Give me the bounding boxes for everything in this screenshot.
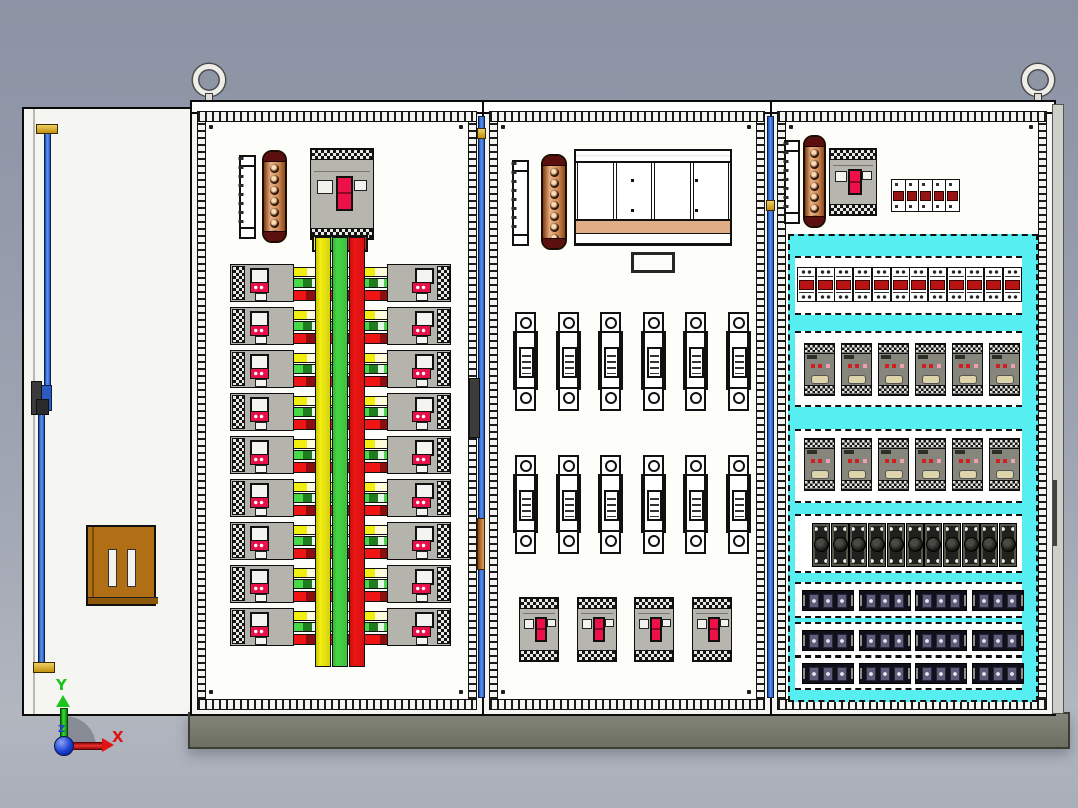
terminal-block[interactable]	[909, 267, 928, 302]
contactor-breaker[interactable]	[915, 438, 946, 491]
breaker-indicator	[412, 411, 431, 422]
contactor-terminals-top	[916, 344, 945, 354]
fuse-tab-bottom	[515, 530, 536, 554]
enclosure-screw	[695, 179, 698, 182]
outgoing-mccb[interactable]	[692, 597, 732, 662]
main-incoming-breaker[interactable]	[310, 148, 374, 240]
enclosure-screw	[631, 179, 634, 182]
terminal-cell	[836, 268, 851, 277]
contactor-indicator	[959, 459, 963, 463]
contactor-tag	[844, 355, 854, 359]
contactor-indicator	[811, 459, 815, 463]
din-terminal-cell	[922, 634, 932, 648]
fuse-tab-bottom	[558, 530, 579, 554]
contactor-label	[996, 375, 1014, 384]
terminal-block[interactable]	[872, 267, 891, 302]
fuseholder-cap	[926, 537, 941, 552]
mccb-toggle-split	[710, 628, 718, 630]
terminal-cell	[836, 292, 851, 301]
fuse-disconnect[interactable]	[726, 455, 749, 550]
cylindrical-fuse-holder[interactable]	[999, 523, 1017, 567]
door-lock-rod-upper[interactable]	[44, 131, 51, 389]
contactor-breaker[interactable]	[804, 438, 835, 491]
document-pocket[interactable]	[86, 525, 156, 606]
din-terminal-group[interactable]	[859, 590, 911, 611]
fuse-disconnect[interactable]	[513, 455, 536, 550]
contactor-terminals-bottom	[805, 385, 834, 395]
bay3-mccb[interactable]	[829, 148, 877, 216]
terminal-red-bar	[949, 280, 964, 290]
contactor-breaker[interactable]	[804, 343, 835, 396]
mccb-terminals-bottom	[693, 650, 731, 661]
distribution-breaker[interactable]	[230, 350, 294, 388]
fuse-tab-bottom	[515, 387, 536, 411]
cylindrical-fuse-holder[interactable]	[924, 523, 942, 567]
contactor-indicator	[892, 364, 896, 368]
fuse-hole	[520, 317, 532, 329]
cabinet-2[interactable]	[482, 100, 774, 716]
contactor-terminals-bottom	[842, 385, 871, 395]
terminal-cell	[818, 292, 833, 301]
contactor-breaker[interactable]	[878, 343, 909, 396]
contactor-indicator	[959, 364, 963, 368]
mccb-label	[835, 171, 847, 182]
lifting-eyebolt-left[interactable]	[193, 64, 225, 102]
pocket-edge	[92, 527, 94, 604]
fuse-hole	[563, 460, 575, 472]
copper-hole	[810, 182, 819, 191]
contactor-indicator	[1003, 364, 1007, 368]
terminal-cell	[949, 268, 964, 277]
metering-enclosure[interactable]	[574, 149, 732, 246]
din-terminal-cell	[936, 594, 946, 608]
cabinet-3[interactable]	[770, 100, 1056, 716]
fuseholder-cap	[982, 537, 997, 552]
breaker-label	[416, 637, 428, 645]
din-terminal-group[interactable]	[915, 630, 967, 651]
cabinet-side-panel-right	[1052, 104, 1064, 714]
copper-hole	[270, 219, 279, 228]
vertical-busbar-l1[interactable]	[315, 237, 331, 667]
pocket-slot	[127, 549, 136, 587]
copper-hole	[270, 164, 279, 173]
fuse-body	[726, 474, 751, 533]
din-terminal-cell	[837, 634, 847, 648]
din-terminal-group[interactable]	[972, 630, 1024, 651]
mounting-plate-highlight[interactable]	[788, 234, 1038, 702]
fuseholder-cap	[851, 537, 866, 552]
breaker-terminal-hatch	[232, 266, 245, 300]
fuse-hole	[563, 535, 575, 547]
terminal-block[interactable]	[947, 267, 966, 302]
outgoing-mccb[interactable]	[577, 597, 617, 662]
contactor-label	[996, 470, 1014, 479]
terminal-block[interactable]	[965, 267, 984, 302]
terminal-red-bar	[799, 280, 814, 290]
distribution-breaker[interactable]	[230, 479, 294, 517]
contactor-indicator	[929, 364, 933, 368]
distribution-breaker[interactable]	[387, 350, 451, 388]
distribution-breaker[interactable]	[230, 307, 294, 345]
fuse-disconnect[interactable]	[556, 455, 579, 550]
distribution-breaker[interactable]	[387, 393, 451, 431]
contactor-indicator	[937, 459, 941, 463]
contactor-indicator	[937, 364, 941, 368]
mccb-label	[317, 180, 333, 194]
contactor-indicator	[1011, 459, 1015, 463]
terminal-red-bar	[920, 191, 931, 201]
distribution-breaker[interactable]	[387, 479, 451, 517]
din-terminal-cell	[837, 594, 847, 608]
contactor-terminals-top	[879, 344, 908, 354]
terminal-cell	[855, 268, 870, 277]
cylindrical-fuse-holder[interactable]	[812, 523, 830, 567]
contactor-breaker[interactable]	[841, 343, 872, 396]
fuse-body	[556, 474, 581, 533]
fuse-hole	[605, 535, 617, 547]
mccb-body-line	[314, 171, 370, 172]
terminal-red-bar	[986, 280, 1001, 290]
terminal-block[interactable]	[853, 267, 872, 302]
fuse-body	[641, 474, 666, 533]
din-terminal-group[interactable]	[859, 630, 911, 651]
cylindrical-fuse-holder[interactable]	[962, 523, 980, 567]
contactor-indicator	[885, 364, 889, 368]
fuse-label	[562, 490, 577, 521]
fuseholder-cap	[833, 537, 848, 552]
distribution-breaker[interactable]	[230, 565, 294, 603]
terminal-cell	[930, 268, 945, 277]
door-rod-guide-top	[36, 124, 58, 134]
cabinet-1[interactable]	[190, 100, 486, 716]
contactor-indicator	[855, 364, 859, 368]
fuse-body	[513, 474, 538, 533]
din-terminal-cell	[993, 594, 1003, 608]
mccb-label	[697, 619, 707, 629]
copper-busbar[interactable]	[803, 135, 826, 228]
fuseholder-cap	[889, 537, 904, 552]
terminal-column	[946, 180, 959, 211]
din-terminal-cell	[936, 634, 946, 648]
breaker-indicator	[412, 540, 431, 551]
din-terminal-group[interactable]	[802, 630, 854, 651]
panel-screw	[747, 125, 751, 129]
contactor-indicator	[974, 459, 978, 463]
fuse-tab-bottom	[600, 387, 621, 411]
din-terminal-group[interactable]	[802, 663, 854, 684]
mccb-label	[639, 619, 649, 629]
fuse-tab-bottom	[558, 387, 579, 411]
panel-screw	[209, 690, 213, 694]
breaker-indicator	[250, 282, 269, 293]
mccb-body-line	[696, 613, 728, 614]
cylindrical-fuse-holder[interactable]	[868, 523, 886, 567]
breaker-label	[255, 293, 267, 301]
contactor-tag	[807, 355, 817, 359]
distribution-breaker[interactable]	[230, 436, 294, 474]
fuse-tab-bottom	[643, 530, 664, 554]
fuse-tab-bottom	[685, 387, 706, 411]
din-terminal-cell	[866, 634, 876, 648]
outgoing-mccb[interactable]	[519, 597, 559, 662]
panel-screw	[459, 125, 463, 129]
fuse-label	[647, 490, 662, 521]
din-terminal-group[interactable]	[802, 590, 854, 611]
fuse-body	[598, 474, 623, 533]
terminal-red-bar	[967, 280, 982, 290]
cylindrical-fuse-holder[interactable]	[980, 523, 998, 567]
fuse-disconnect[interactable]	[556, 312, 579, 407]
distribution-breaker[interactable]	[230, 393, 294, 431]
fuse-label	[604, 347, 619, 378]
cad-viewport[interactable]: Y X Z	[0, 0, 1078, 808]
fuse-disconnect[interactable]	[598, 312, 621, 407]
copper-busbar[interactable]	[541, 154, 567, 250]
contactor-row	[795, 331, 1022, 407]
copper-cap	[543, 156, 565, 166]
cylindrical-fuse-holder[interactable]	[887, 523, 905, 567]
contactor-label	[959, 470, 977, 479]
fuse-disconnect[interactable]	[598, 455, 621, 550]
fuse-body	[556, 331, 581, 390]
breaker-indicator	[412, 626, 431, 637]
din-terminal-cell	[922, 667, 932, 681]
terminal-red-bar	[874, 280, 889, 290]
fuse-disconnect[interactable]	[726, 312, 749, 407]
fuse-hole	[690, 392, 702, 404]
breaker-indicator	[412, 368, 431, 379]
terminal-strip[interactable]	[512, 160, 529, 246]
contactor-indicator	[892, 459, 896, 463]
breaker-terminal-hatch	[232, 352, 245, 386]
origin-triad[interactable]: Y X Z	[20, 670, 150, 780]
terminal-cell	[986, 292, 1001, 301]
mccb-terminals-top	[311, 149, 373, 160]
breaker-terminal-hatch	[437, 266, 450, 300]
breaker-terminal-hatch	[232, 481, 245, 515]
din-terminal-group[interactable]	[972, 590, 1024, 611]
distribution-breaker[interactable]	[230, 264, 294, 302]
fuse-hole	[733, 392, 745, 404]
distribution-breaker[interactable]	[387, 264, 451, 302]
contactor-breaker[interactable]	[989, 438, 1020, 491]
fuse-disconnect[interactable]	[683, 312, 706, 407]
din-terminal-cell	[823, 667, 833, 681]
fuse-hole	[733, 460, 745, 472]
contactor-terminals-top	[953, 344, 982, 354]
terminal-red-bar	[934, 191, 945, 201]
mccb-label	[524, 619, 534, 629]
contactor-tag	[918, 450, 928, 454]
cylindrical-fuse-holder[interactable]	[849, 523, 867, 567]
din-terminal-group[interactable]	[915, 663, 967, 684]
contactor-tag	[881, 355, 891, 359]
din-terminal-cell	[950, 594, 960, 608]
breaker-indicator	[250, 540, 269, 551]
eyebolt-ring	[193, 64, 225, 96]
cylindrical-fuse-holder[interactable]	[831, 523, 849, 567]
terminal-block[interactable]	[834, 267, 853, 302]
fuse-label	[732, 347, 747, 378]
mccb-toggle	[535, 617, 547, 642]
copper-hole	[270, 186, 279, 195]
breaker-label	[416, 465, 428, 473]
breaker-label	[255, 379, 267, 387]
copper-hole	[810, 171, 819, 180]
distribution-breaker[interactable]	[387, 565, 451, 603]
distribution-breaker[interactable]	[387, 522, 451, 560]
fuse-hole	[520, 392, 532, 404]
terminal-strip-row	[795, 582, 1022, 618]
outgoing-mccb[interactable]	[634, 597, 674, 662]
contactor-terminals-bottom	[879, 385, 908, 395]
contactor-terminals-top	[842, 344, 871, 354]
door-lock-rod-lower[interactable]	[38, 407, 45, 667]
terminal-red-bar	[893, 280, 908, 290]
fuse-disconnect[interactable]	[513, 312, 536, 407]
fuse-disconnect[interactable]	[641, 455, 664, 550]
origin-sphere[interactable]	[54, 736, 74, 756]
contactor-label	[848, 375, 866, 384]
terminal-strip[interactable]	[239, 155, 256, 239]
terminal-strip[interactable]	[784, 140, 800, 224]
fuse-tab-bottom	[728, 387, 749, 411]
din-terminal-cell	[979, 634, 989, 648]
terminal-red-bar	[1005, 280, 1020, 290]
mccb-toggle	[848, 169, 862, 195]
din-terminal-group[interactable]	[859, 663, 911, 684]
contactor-breaker[interactable]	[915, 343, 946, 396]
fuse-hole	[648, 392, 660, 404]
copper-hole	[550, 201, 559, 210]
top-terminal-block-array[interactable]	[891, 179, 960, 212]
contactor-breaker[interactable]	[841, 438, 872, 491]
distribution-breaker[interactable]	[230, 608, 294, 646]
din-terminal-cell	[823, 594, 833, 608]
copper-cap	[264, 152, 285, 162]
terminal-cell	[930, 292, 945, 301]
contactor-indicator	[966, 459, 970, 463]
contactor-indicator	[848, 459, 852, 463]
contactor-tag	[918, 355, 928, 359]
terminal-strip-row	[795, 622, 1022, 657]
breaker-indicator	[412, 325, 431, 336]
contactor-label	[959, 375, 977, 384]
contactor-indicator	[1003, 459, 1007, 463]
fuse-hole	[605, 392, 617, 404]
terminal-block[interactable]	[984, 267, 1003, 302]
contactor-indicator	[966, 364, 970, 368]
breaker-label	[255, 422, 267, 430]
copper-cap	[805, 137, 824, 147]
fuse-disconnect[interactable]	[641, 312, 664, 407]
contactor-breaker[interactable]	[989, 343, 1020, 396]
mccb-body-line	[833, 165, 873, 166]
din-terminal-group[interactable]	[972, 663, 1024, 684]
fuseholder-cap	[945, 537, 960, 552]
breaker-indicator	[412, 282, 431, 293]
breaker-terminal-hatch	[232, 567, 245, 601]
cabinet-door-panel[interactable]	[22, 107, 194, 716]
fuse-hole	[648, 535, 660, 547]
cylindrical-fuse-holder[interactable]	[943, 523, 961, 567]
terminal-block[interactable]	[1003, 267, 1022, 302]
copper-hole	[270, 175, 279, 184]
contactor-indicator	[863, 364, 867, 368]
contactor-indicator	[900, 459, 904, 463]
vertical-busbar-l2[interactable]	[332, 237, 348, 667]
terminal-block[interactable]	[816, 267, 835, 302]
cylindrical-fuse-holder[interactable]	[906, 523, 924, 567]
breaker-terminal-hatch	[232, 610, 245, 644]
mccb-toggle-split	[537, 628, 545, 630]
x-axis-label: X	[112, 730, 124, 745]
contactor-breaker[interactable]	[952, 343, 983, 396]
din-terminal-group[interactable]	[915, 590, 967, 611]
bay2-rod-handle[interactable]	[469, 378, 480, 438]
din-terminal-cell	[866, 667, 876, 681]
distribution-breaker[interactable]	[230, 522, 294, 560]
distribution-breaker[interactable]	[387, 307, 451, 345]
fuse-label	[647, 347, 662, 378]
mccb-toggle	[650, 617, 662, 642]
contactor-terminals-top	[916, 439, 945, 449]
terminal-cell	[967, 292, 982, 301]
contactor-terminals-top	[842, 439, 871, 449]
terminal-red-bar	[836, 280, 851, 290]
lifting-eyebolt-right[interactable]	[1022, 64, 1054, 102]
mccb-label	[720, 619, 729, 627]
contactor-breaker[interactable]	[878, 438, 909, 491]
enclosure-copper-rail	[576, 219, 730, 234]
terminal-block[interactable]	[797, 267, 816, 302]
distribution-breaker[interactable]	[387, 436, 451, 474]
fuse-tab-bottom	[728, 530, 749, 554]
contactor-indicator	[929, 459, 933, 463]
contactor-label	[811, 470, 829, 479]
fuse-label	[519, 347, 534, 378]
breaker-indicator	[250, 497, 269, 508]
fuse-tab-bottom	[685, 530, 706, 554]
breaker-terminal-hatch	[437, 395, 450, 429]
terminal-block[interactable]	[891, 267, 910, 302]
fuse-label	[689, 347, 704, 378]
enclosure-screw	[631, 209, 634, 212]
fuse-body	[513, 331, 538, 390]
fuse-body	[683, 331, 708, 390]
contactor-breaker[interactable]	[952, 438, 983, 491]
din-terminal-cell	[979, 594, 989, 608]
distribution-breaker[interactable]	[387, 608, 451, 646]
fuse-hole	[648, 317, 660, 329]
din-terminal-cell	[993, 634, 1003, 648]
din-terminal-cell	[809, 594, 819, 608]
terminal-red-bar	[893, 191, 904, 201]
bay2-rod-copper-link	[477, 518, 485, 570]
din-terminal-cell	[1007, 594, 1017, 608]
vertical-busbar-l3[interactable]	[349, 237, 365, 667]
terminal-block[interactable]	[928, 267, 947, 302]
breaker-indicator	[250, 368, 269, 379]
copper-hole	[550, 223, 559, 232]
fuse-disconnect[interactable]	[683, 455, 706, 550]
fuse-hole	[648, 460, 660, 472]
plinth-base[interactable]	[188, 712, 1070, 749]
breaker-label	[255, 594, 267, 602]
mccb-toggle-split	[850, 181, 860, 183]
contactor-indicator	[996, 364, 1000, 368]
copper-busbar[interactable]	[262, 150, 287, 243]
